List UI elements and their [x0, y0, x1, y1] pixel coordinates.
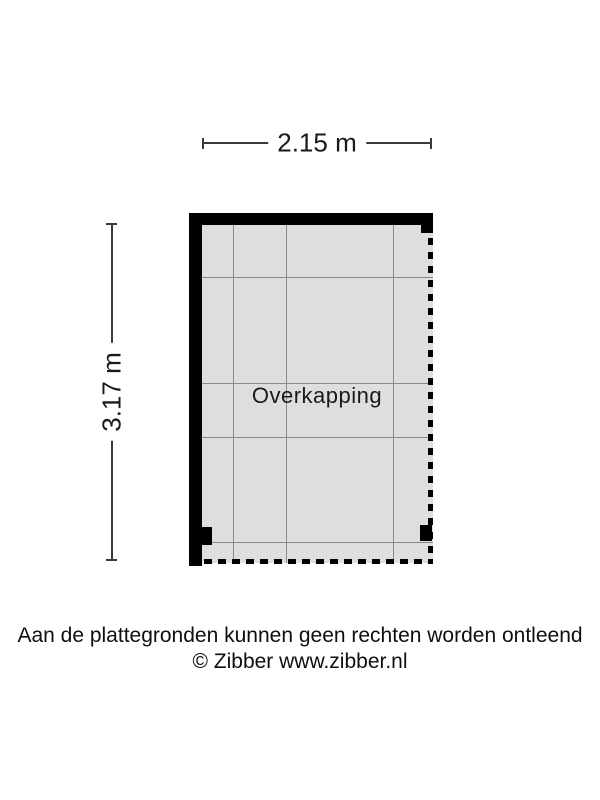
footer-disclaimer: Aan de plattegronden kunnen geen rechten…	[0, 623, 600, 675]
open-side-right-dashed-line	[428, 238, 433, 564]
grid-line-horizontal	[202, 437, 433, 438]
room-label: Overkapping	[252, 383, 382, 409]
wall-left	[189, 213, 202, 566]
dimension-width-tick-right	[430, 138, 432, 149]
wall-top	[189, 213, 433, 225]
dimension-height-label: 3.17 m	[97, 343, 128, 441]
grid-line-vertical	[233, 225, 234, 563]
dimension-height-tick-bottom	[106, 559, 117, 561]
grid-line-horizontal	[202, 542, 433, 543]
open-side-bottom-dashed-line	[204, 559, 433, 564]
grid-line-vertical	[393, 225, 394, 563]
disclaimer-text: Aan de plattegronden kunnen geen rechten…	[0, 623, 600, 649]
post-bottom-left	[202, 527, 212, 545]
dimension-height-tick-top	[106, 223, 117, 225]
dimension-width-label: 2.15 m	[268, 128, 366, 159]
dimension-width-tick-left	[202, 138, 204, 149]
copyright-text: © Zibber www.zibber.nl	[0, 649, 600, 675]
grid-line-horizontal	[202, 277, 433, 278]
post-top-right	[421, 225, 433, 233]
floorplan-page: 2.15 m 3.17 m Overkapping Aan de platteg…	[0, 0, 600, 800]
